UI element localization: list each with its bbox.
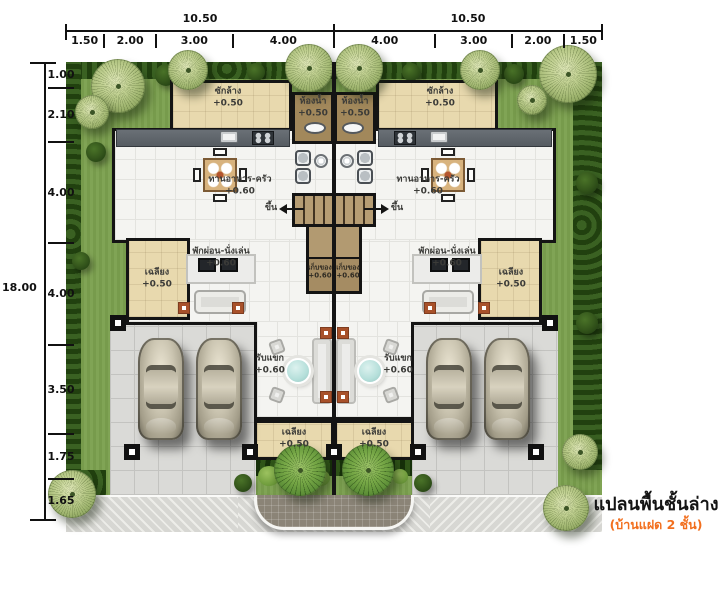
- bush: [414, 474, 432, 492]
- room-level: +0.50: [340, 108, 370, 120]
- room-label-living-left: พักผ่อน-นั่งเล่น +0.60: [192, 246, 249, 269]
- room-name: เฉลียง: [145, 267, 169, 279]
- room-label-living-right: พักผ่อน-นั่งเล่น +0.60: [418, 246, 475, 269]
- post-marker: [338, 328, 348, 338]
- dim-seg: 1.50: [66, 34, 105, 48]
- column: [528, 444, 544, 460]
- kitchen-sink-right: [430, 131, 448, 143]
- coffee-table-right: [357, 358, 383, 384]
- post-marker: [233, 303, 243, 313]
- room-name: ขึ้น: [391, 203, 403, 215]
- dim-vline: [44, 62, 46, 521]
- dim-total-right: 10.50: [334, 12, 602, 30]
- room-name: เก็บของ: [336, 264, 359, 272]
- room-label-laundry-left: ซักล้าง +0.50: [213, 86, 243, 109]
- room-label-laundry-right: ซักล้าง +0.50: [425, 86, 455, 109]
- floor-plan-page: 10.50 10.50 1.50 2.00 3.00 4.00 4.00 3.0…: [0, 0, 720, 600]
- plan-title: แปลนพื้นชั้นล่าง: [592, 494, 720, 516]
- washer-left-2: [295, 168, 311, 184]
- room-name: ห้องน้ำ: [342, 96, 369, 108]
- room-level: +0.50: [279, 439, 309, 451]
- dim-total-left: 10.50: [66, 12, 334, 30]
- bush: [247, 63, 265, 81]
- dim-seg: 3.50: [48, 346, 74, 435]
- washer-right-1: [357, 150, 373, 166]
- room-name: ขึ้น: [265, 203, 277, 215]
- room-level: +0.50: [298, 108, 328, 120]
- tree: [342, 444, 394, 496]
- room-level: +0.50: [359, 439, 389, 451]
- dim-tick: [65, 24, 67, 40]
- basin-left: [314, 154, 328, 168]
- tree: [460, 50, 500, 90]
- column: [110, 315, 126, 331]
- bush: [576, 172, 598, 194]
- room-label-reception-right: รับแขก +0.60: [383, 353, 413, 376]
- post-marker: [321, 392, 331, 402]
- post-marker: [425, 303, 435, 313]
- bush: [402, 63, 420, 81]
- dim-seg: 1.65: [48, 480, 74, 521]
- post-marker: [479, 303, 489, 313]
- post-marker: [179, 303, 189, 313]
- room-name: ทานอาหาร-ครัว: [396, 174, 459, 186]
- room-level: +0.60: [383, 365, 413, 377]
- room-label-storage-left: เก็บของ +0.60: [308, 264, 331, 281]
- room-level: +0.60: [336, 272, 359, 280]
- dim-seg: 2.00: [105, 34, 157, 48]
- room-label-side-porch-left: เฉลียง +0.50: [142, 267, 172, 290]
- toilet-left: [304, 122, 326, 134]
- column: [124, 444, 140, 460]
- post-marker: [321, 328, 331, 338]
- room-level: +0.50: [425, 98, 455, 110]
- room-name: ห้องน้ำ: [300, 96, 327, 108]
- room-level: +0.60: [432, 258, 462, 270]
- column: [326, 444, 342, 460]
- stove-left: [252, 131, 274, 145]
- room-label-bathroom-right: ห้องน้ำ +0.50: [340, 96, 370, 119]
- room-level: +0.60: [206, 258, 236, 270]
- stair-up-label-right: ขึ้น: [391, 203, 403, 215]
- dim-seg: 2.10: [48, 89, 74, 143]
- room-level: +0.60: [413, 186, 443, 198]
- dim-seg: 2.00: [513, 34, 565, 48]
- room-name: ซักล้าง: [215, 86, 242, 98]
- toilet-right: [342, 122, 364, 134]
- bush: [392, 469, 408, 484]
- plan-subtitle: (บ้านแฝด 2 ชั้น): [592, 516, 720, 535]
- room-level: +0.60: [308, 272, 331, 280]
- room-level: +0.60: [255, 365, 285, 377]
- room-name: เฉลียง: [362, 427, 386, 439]
- column: [542, 315, 558, 331]
- room-name: เฉลียง: [499, 267, 523, 279]
- dim-seg: 4.00: [48, 244, 74, 345]
- dim-seg: 4.00: [234, 34, 335, 48]
- dim-seg: 3.00: [157, 34, 234, 48]
- bush: [86, 142, 106, 162]
- room-name: พักผ่อน-นั่งเล่น: [192, 246, 249, 258]
- tree: [75, 95, 109, 129]
- room-name: ทานอาหาร-ครัว: [208, 174, 271, 186]
- site-plan: ซักล้าง +0.50 ห้องน้ำ +0.50 ทานอาหาร-ครั…: [66, 62, 602, 532]
- room-label-front-porch-right: เฉลียง +0.50: [359, 427, 389, 450]
- coffee-table-left: [285, 358, 311, 384]
- room-label-dining-left: ทานอาหาร-ครัว +0.60: [208, 174, 271, 197]
- bush: [576, 312, 598, 334]
- bush: [504, 64, 524, 84]
- stair-up-label-left: ขึ้น: [265, 203, 277, 215]
- room-label-front-porch-left: เฉลียง +0.50: [279, 427, 309, 450]
- car-right-2: [484, 338, 530, 440]
- dimension-left-segments: 1.00 2.10 4.00 4.00 3.50 1.75 1.65: [48, 62, 74, 521]
- chair: [441, 148, 455, 156]
- car-left-2: [196, 338, 242, 440]
- bush: [72, 252, 90, 270]
- plan-title-block: แปลนพื้นชั้นล่าง (บ้านแฝด 2 ชั้น): [592, 494, 720, 534]
- room-level: +0.50: [142, 279, 172, 291]
- dim-tick: [333, 24, 335, 40]
- column: [410, 444, 426, 460]
- tree: [517, 85, 547, 115]
- dim-tick: [601, 24, 603, 40]
- room-level: +0.50: [213, 98, 243, 110]
- dimension-strip-left: 1.00 2.10 4.00 4.00 3.50 1.75 1.65: [36, 62, 70, 521]
- stair-up-arrow-right: [364, 208, 386, 210]
- washer-right-2: [357, 168, 373, 184]
- dim-seg: 3.00: [436, 34, 513, 48]
- washer-left-1: [295, 150, 311, 166]
- dimension-strip-top: 10.50 10.50 1.50 2.00 3.00 4.00 4.00 3.0…: [66, 12, 602, 56]
- room-name: ซักล้าง: [427, 86, 454, 98]
- room-label-dining-right: ทานอาหาร-ครัว +0.60: [396, 174, 459, 197]
- entry-pad: [254, 495, 414, 530]
- room-name: เก็บของ: [308, 264, 331, 272]
- chair: [213, 148, 227, 156]
- basin-right: [340, 154, 354, 168]
- room-name: พักผ่อน-นั่งเล่น: [418, 246, 475, 258]
- tree: [274, 444, 326, 496]
- column: [242, 444, 258, 460]
- room-label-storage-right: เก็บของ +0.60: [336, 264, 359, 281]
- car-left-1: [138, 338, 184, 440]
- stair-up-arrow-left: [282, 208, 304, 210]
- shrub-border-right: [573, 62, 602, 470]
- room-level: +0.50: [496, 279, 526, 291]
- chair: [467, 168, 475, 182]
- room-name: รับแขก: [256, 353, 284, 365]
- room-name: รับแขก: [384, 353, 412, 365]
- room-label-reception-left: รับแขก +0.60: [255, 353, 285, 376]
- tree: [543, 485, 589, 531]
- room-name: เฉลียง: [282, 427, 306, 439]
- post-marker: [338, 392, 348, 402]
- room-label-bathroom-left: ห้องน้ำ +0.50: [298, 96, 328, 119]
- dim-seg: 4.00: [48, 143, 74, 244]
- bush: [234, 474, 252, 492]
- dim-seg: 4.00: [335, 34, 436, 48]
- dim-seg: 1.75: [48, 435, 74, 480]
- tree: [562, 434, 598, 470]
- dim-seg: 1.50: [565, 34, 602, 48]
- car-right-1: [426, 338, 472, 440]
- kitchen-sink-left: [220, 131, 238, 143]
- chair: [193, 168, 201, 182]
- tree: [168, 50, 208, 90]
- stove-right: [394, 131, 416, 145]
- dim-total-height: 18.00: [2, 281, 36, 294]
- room-level: +0.60: [225, 186, 255, 198]
- room-label-side-porch-right: เฉลียง +0.50: [496, 267, 526, 290]
- dim-seg: 1.00: [48, 62, 74, 89]
